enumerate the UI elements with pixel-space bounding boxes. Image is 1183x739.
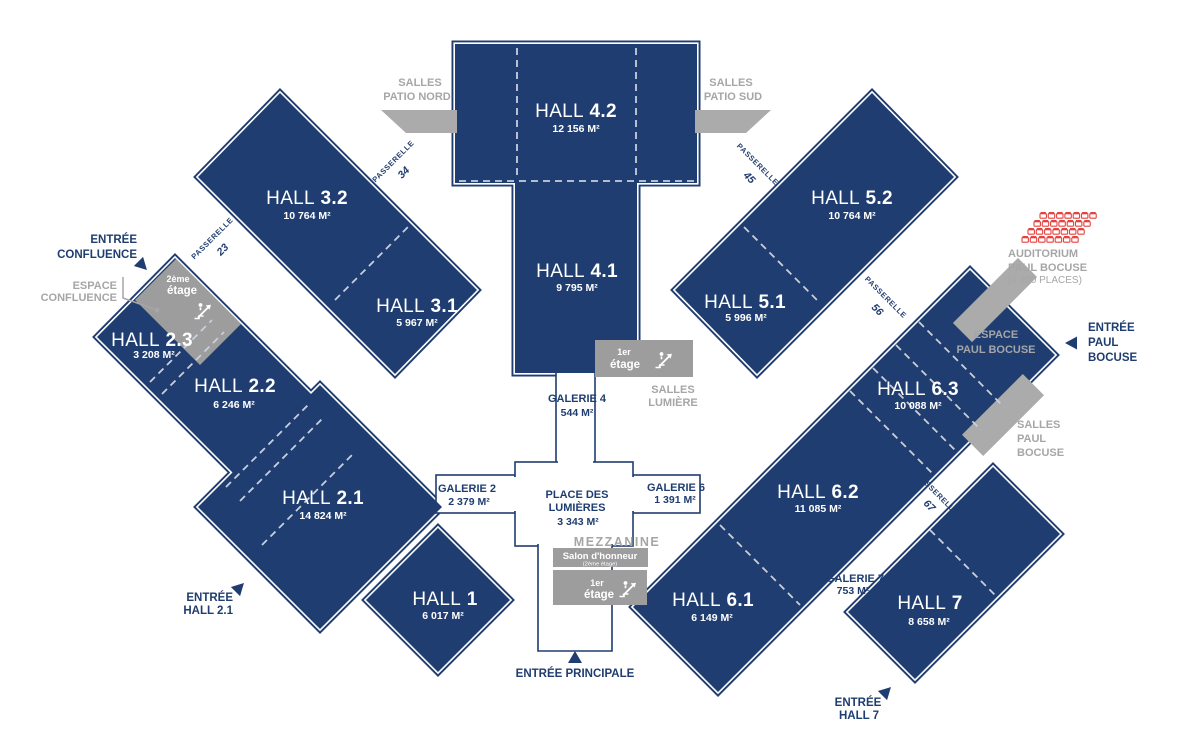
espace-paul-bocuse-label-2: PAUL BOCUSE — [956, 344, 1035, 356]
salles-lumiere-label-1: SALLES — [651, 384, 694, 396]
hall-6-3-label: HALL 6.3 — [877, 379, 959, 400]
galerie-7-area: 753 M² — [837, 585, 870, 597]
salles-patio-sud-label-2: PATIO SUD — [704, 91, 762, 103]
hall-4-2-area: 12 156 M² — [552, 123, 600, 135]
entree-paul-bocuse-label-2: PAUL — [1088, 337, 1118, 349]
auditorium-seats-icon — [1022, 212, 1096, 242]
hall-2-3-label: HALL 2.3 — [111, 330, 193, 351]
salles-patio-nord-label-1: SALLES — [398, 77, 441, 89]
place-des-lumieres-label-1: PLACE DES — [546, 489, 609, 501]
hall-4-1-area: 9 795 M² — [556, 282, 598, 294]
salles-paul-bocuse-label-1: SALLES — [1017, 419, 1060, 431]
hall-2-2-label: HALL 2.2 — [194, 376, 276, 397]
hall-1-area: 6 017 M² — [422, 610, 464, 622]
hall-1-label: HALL 1 — [412, 589, 477, 610]
salles-patio-nord-patch[interactable] — [381, 110, 457, 133]
entree-confluence-label-2: CONFLUENCE — [57, 249, 137, 261]
hall-6-1-label: HALL 6.1 — [672, 590, 754, 611]
salles-patio-sud-patch[interactable] — [695, 110, 771, 133]
espace-confluence-label-2: CONFLUENCE — [41, 292, 117, 304]
salon-honneur-label: Salon d'honneur — [563, 551, 638, 562]
passerelle-67-label: PASSERELLE — [915, 471, 961, 517]
place-des-lumieres-area: 3 343 M² — [557, 516, 599, 528]
salles-lumiere-label-2: LUMIÈRE — [648, 396, 698, 409]
etage-2-label: étage — [167, 285, 197, 297]
hall-2-3-area: 3 208 M² — [133, 349, 175, 361]
hall-4-shape[interactable] — [455, 44, 697, 373]
mezzanine-label: MEZZANINE — [574, 535, 660, 549]
entree-confluence-label-1: ENTRÉE — [90, 233, 137, 246]
hall-4-1-label: HALL 4.1 — [536, 261, 618, 282]
entree-principale-label: ENTRÉE PRINCIPALE — [516, 667, 635, 680]
hall-5-1-label: HALL 5.1 — [704, 292, 786, 313]
hall-7-area: 8 658 M² — [908, 616, 950, 628]
hall-2-2-area: 6 246 M² — [213, 399, 255, 411]
salles-patio-nord-label-2: PATIO NORD — [383, 91, 450, 103]
hall-6-2-label: HALL 6.2 — [777, 482, 859, 503]
hall-6-3-area: 10 088 M² — [894, 400, 942, 412]
passerelle-56-label: PASSERELLE — [863, 274, 909, 320]
hall-5-2-area: 10 764 M² — [828, 210, 876, 222]
leader-dot — [155, 308, 160, 313]
entree-paul-bocuse-arrow-icon — [1065, 337, 1077, 350]
salles-patio-sud-label-1: SALLES — [709, 77, 752, 89]
passerelle-45-label: PASSERELLE — [735, 141, 781, 187]
entree-principale-arrow-icon — [568, 651, 582, 663]
hall-2-1-area: 14 824 M² — [299, 510, 347, 522]
hall-3-2-area: 10 764 M² — [283, 210, 331, 222]
etage-1-mezz-label: étage — [584, 589, 614, 601]
hall-3-1-area: 5 967 M² — [396, 317, 438, 329]
passerelle-23-number: 23 — [214, 241, 232, 259]
salles-paul-bocuse-label-3: BOCUSE — [1017, 447, 1064, 459]
passerelle-56-number: 56 — [869, 302, 886, 319]
salles-paul-bocuse-label-2: PAUL — [1017, 433, 1046, 445]
floor-plan-page: HALL 4.2 12 156 M² HALL 4.1 9 795 M² HAL… — [0, 0, 1183, 739]
espace-confluence-label-1: ESPACE — [73, 280, 117, 292]
galerie-2-area: 2 379 M² — [448, 496, 490, 508]
hall-7-label: HALL 7 — [897, 593, 962, 614]
entree-hall-2-1-label-1: ENTRÉE — [186, 591, 233, 604]
passerelle-34-number: 34 — [396, 164, 413, 181]
corridor-junction-patch — [513, 477, 517, 511]
passerelle-45-number: 45 — [740, 169, 758, 187]
hall-5-1-area: 5 996 M² — [725, 312, 767, 324]
hall-5-2-label: HALL 5.2 — [811, 188, 893, 209]
entree-paul-bocuse-label-1: ENTRÉE — [1088, 321, 1135, 334]
entree-paul-bocuse-label-3: BOCUSE — [1088, 352, 1138, 364]
hall-4-2-label: HALL 4.2 — [535, 101, 617, 122]
entree-hall-7-label-2: HALL 7 — [839, 710, 879, 722]
passerelle-23-label: PASSERELLE — [189, 215, 235, 261]
auditorium-label-1: AUDITORIUM — [1008, 248, 1078, 260]
venue-floor-plan: HALL 4.2 12 156 M² HALL 4.1 9 795 M² HAL… — [0, 0, 1183, 739]
etage-1-lumiere-label: étage — [610, 359, 640, 371]
galerie-4-area: 544 M² — [561, 407, 594, 419]
entree-hall-7-label-1: ENTRÉE — [835, 696, 882, 709]
galerie-6-area: 1 391 M² — [654, 494, 696, 506]
hall-6-2-area: 11 085 M² — [795, 503, 842, 515]
etage-1-lumiere-sup-label: 1er — [617, 347, 631, 357]
corridor-junction-patch — [631, 477, 635, 511]
salon-honneur-floor-label: (2ème étage) — [583, 562, 618, 568]
galerie-2-label: GALERIE 2 — [438, 483, 496, 495]
galerie-6-label: GALERIE 6 — [647, 482, 705, 494]
entree-hall-2-1-label-2: HALL 2.1 — [183, 605, 233, 617]
galerie-4-label: GALERIE 4 — [548, 393, 607, 405]
etage-1-mezz-sup-label: 1er — [590, 578, 604, 588]
passerelle-34-label: PASSERELLE — [370, 138, 416, 184]
auditorium-label-2: PAUL BOCUSE — [1008, 262, 1087, 274]
hall-6-1-area: 6 149 M² — [691, 612, 733, 624]
entree-hall-2-1-arrow-icon — [231, 578, 249, 596]
place-des-lumieres-label-2: LUMIÈRES — [549, 501, 606, 514]
corridor-junction-patch — [558, 460, 593, 465]
espace-paul-bocuse-label-1: ESPACE — [974, 329, 1018, 341]
galerie-7-label: GALERIE 7 — [826, 573, 884, 585]
hall-3-2-label: HALL 3.2 — [266, 188, 348, 209]
hall-2-1-label: HALL 2.1 — [282, 488, 364, 509]
passerelle-67-number: 67 — [921, 498, 939, 516]
auditorium-places-label: (4 200 PLACES) — [1008, 275, 1082, 286]
hall-3-1-label: HALL 3.1 — [376, 296, 458, 317]
etage-2-sup-label: 2ème — [166, 274, 189, 284]
